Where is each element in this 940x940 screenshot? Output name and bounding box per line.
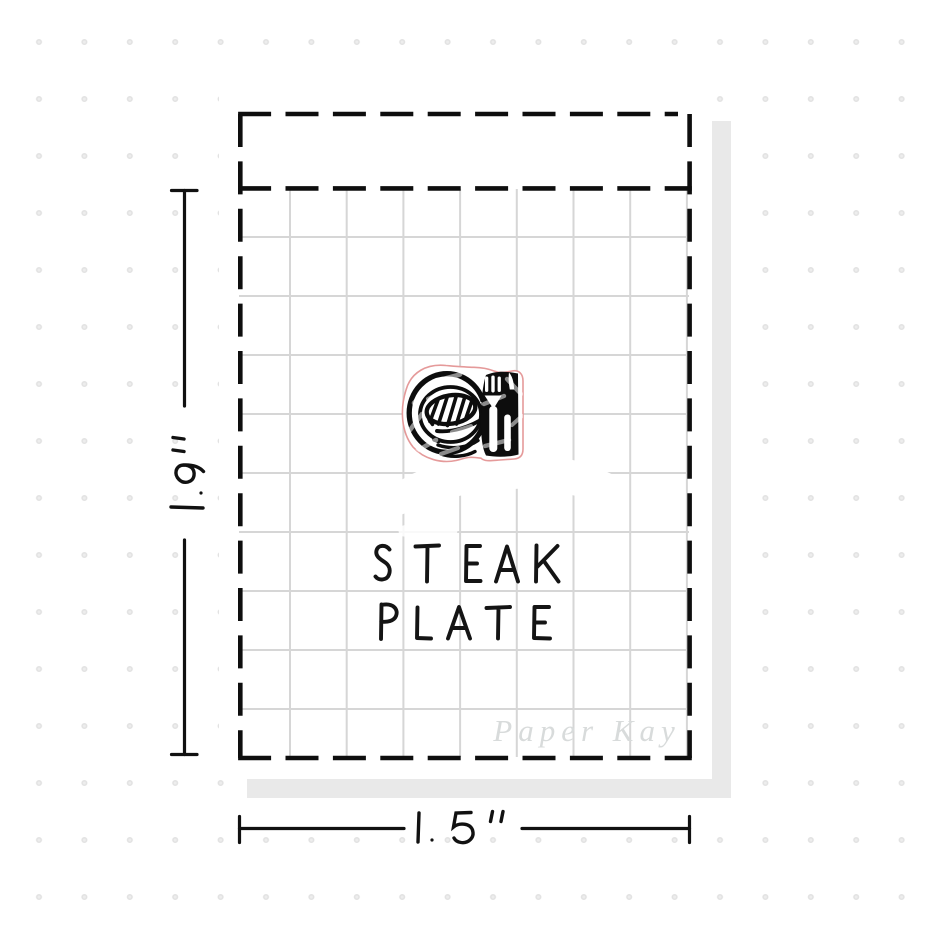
svg-text:Paper Kay: Paper Kay: [492, 713, 680, 748]
